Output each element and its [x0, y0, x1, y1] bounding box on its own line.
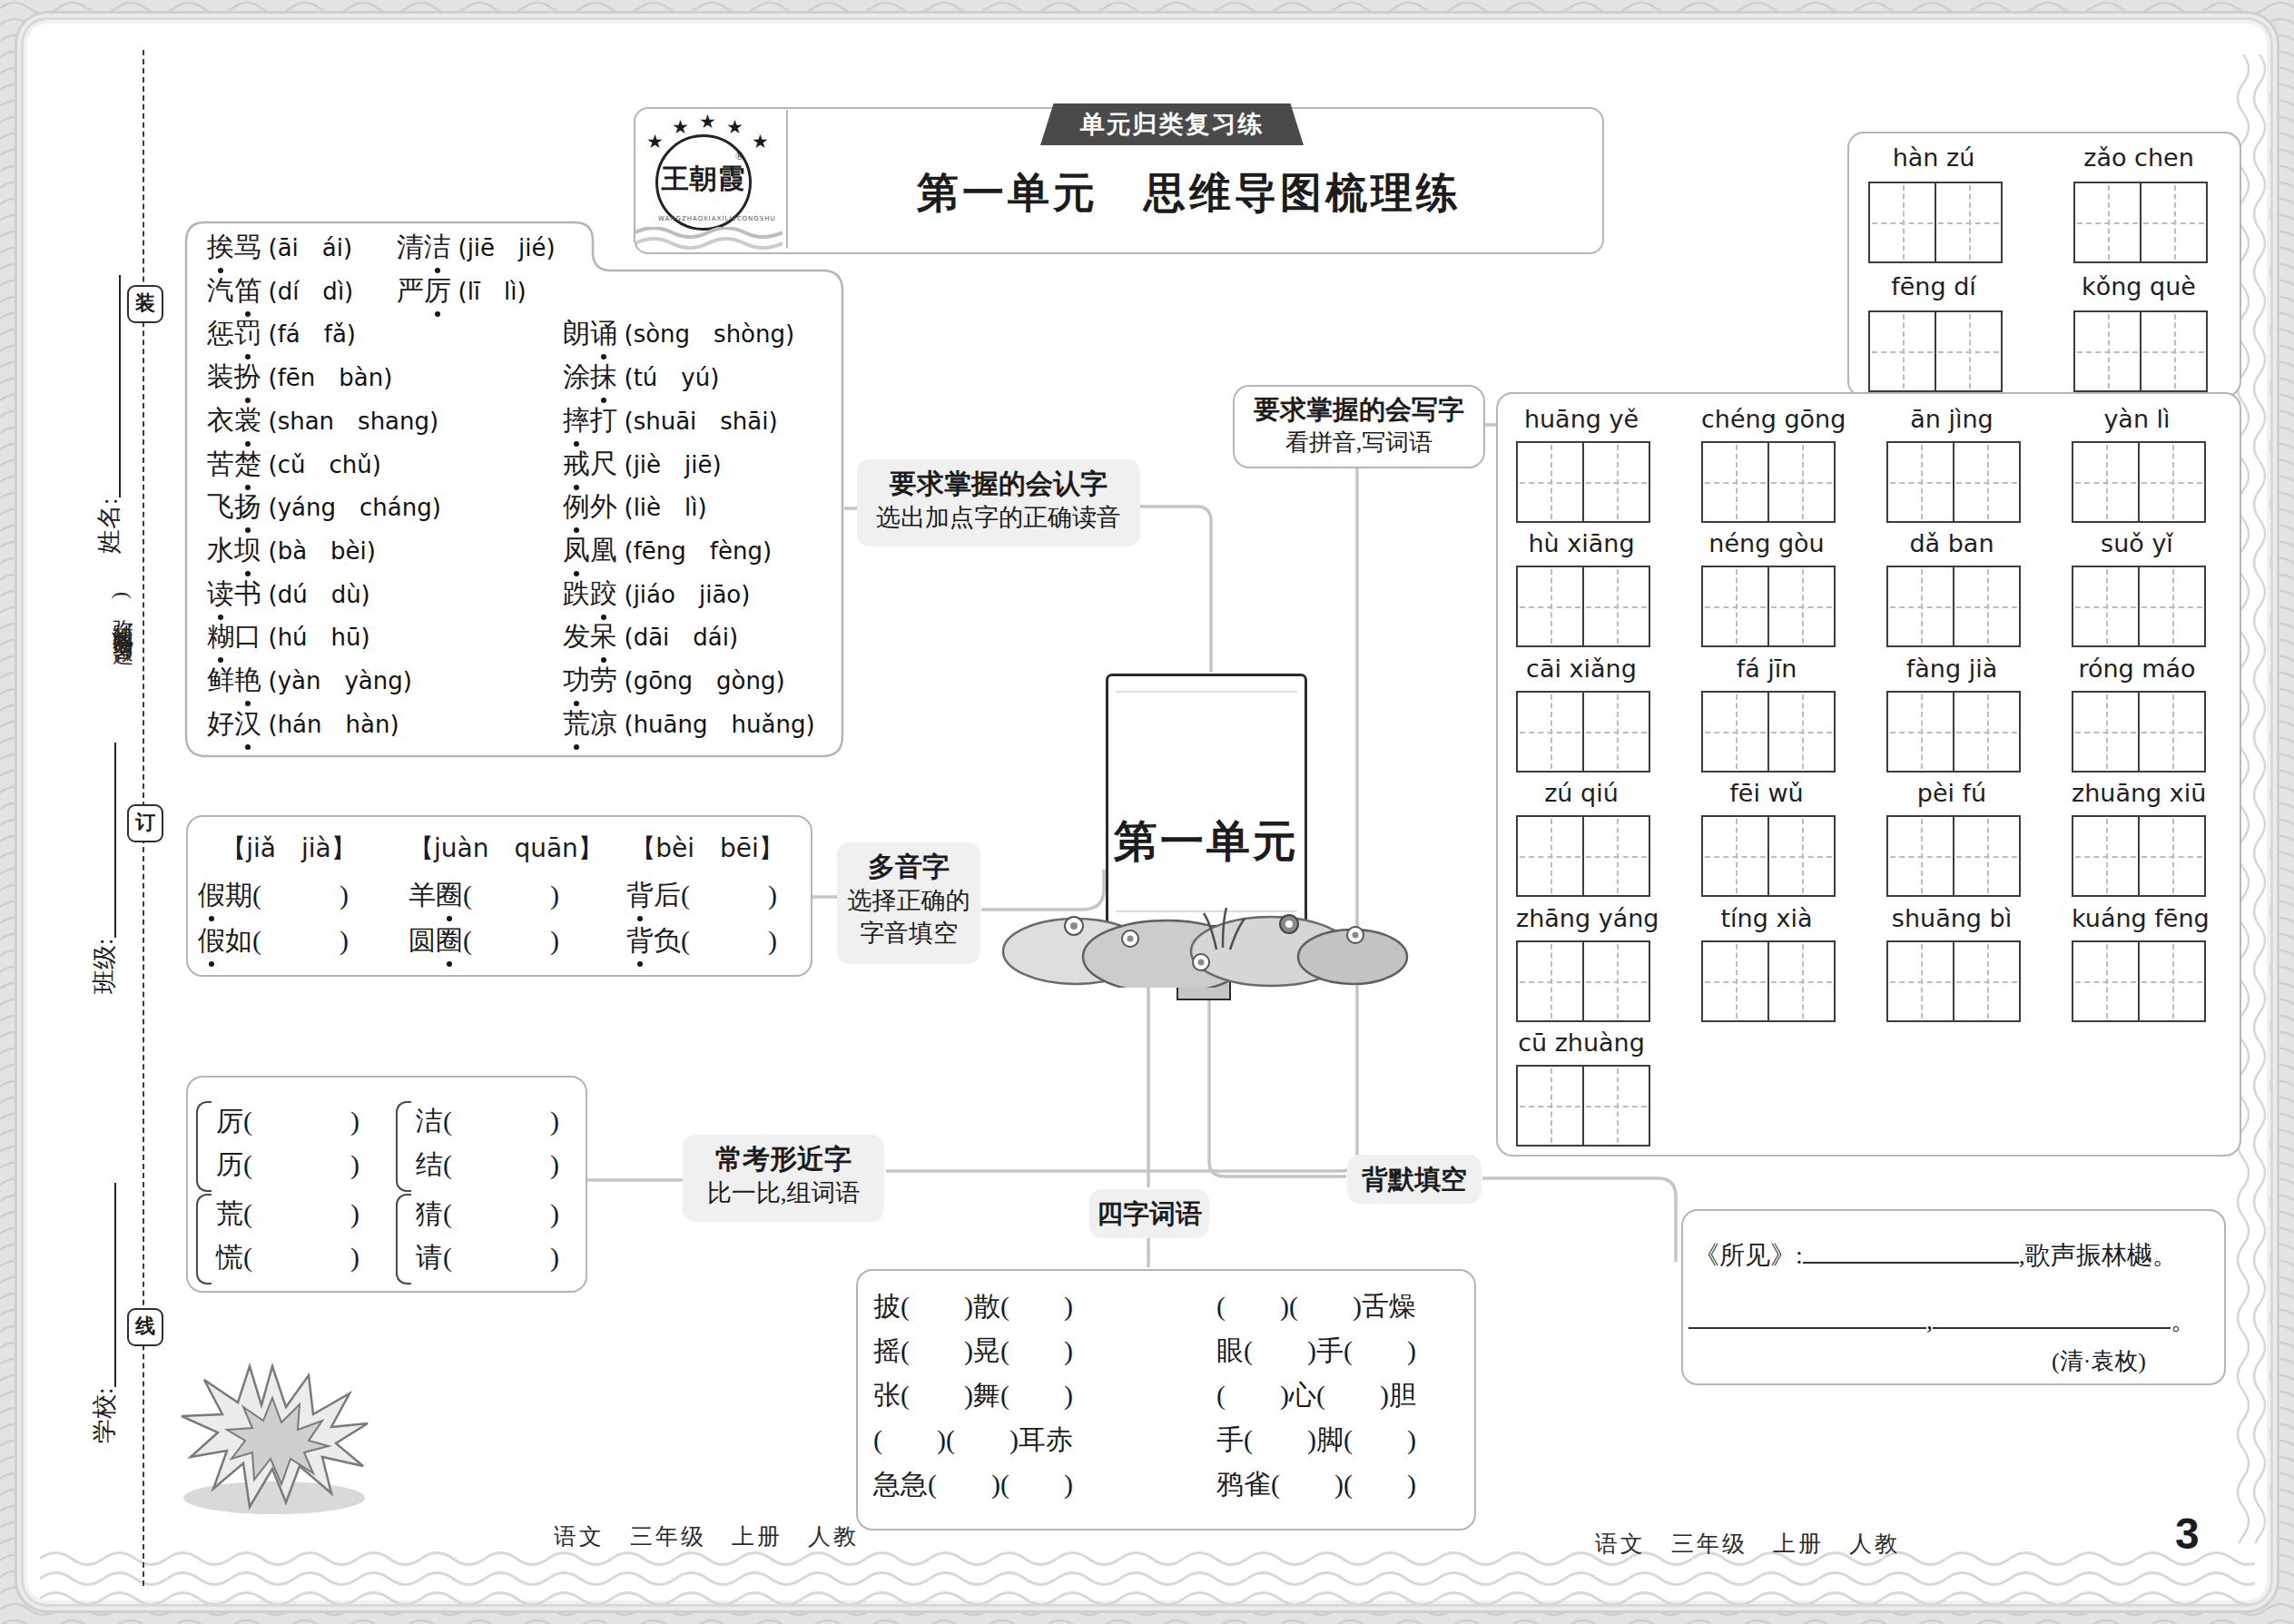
xingjin-entry: 慌(): [216, 1237, 359, 1277]
poem-period: 。: [2171, 1306, 2196, 1334]
grid-cell: [2073, 693, 2138, 771]
node-beimo: 背默填空: [1347, 1155, 1482, 1204]
poem-comma: ,: [1926, 1306, 1933, 1334]
writing-grid: [1701, 441, 1836, 523]
pinyin-options: (tú yú): [625, 364, 720, 391]
hanzi: 涂: [563, 361, 590, 391]
writing-grid: [1516, 566, 1650, 647]
footer-left: 语文 三年级 上册 人教: [554, 1521, 859, 1551]
hanzi: 挨: [207, 227, 234, 267]
grid-cell: [1953, 817, 2019, 895]
writing-grid: [2072, 441, 2206, 523]
duoyin-entry: 背后(): [626, 875, 777, 915]
node-xiezi-subtitle: 看拼音,写词语: [1235, 427, 1483, 459]
grid-cell: [2138, 567, 2204, 645]
unit-banner: 单元归类复习练: [1040, 103, 1304, 145]
hanzi: 猜: [416, 1198, 443, 1228]
grid-pinyin-label: suǒ yǐ: [2072, 529, 2202, 557]
renzi-entry: 涂抹 (tú yú): [563, 357, 719, 397]
poem-blank-3: [1933, 1302, 2171, 1329]
writing-grid: [2072, 566, 2206, 647]
hanzi: 结: [416, 1149, 443, 1179]
beimo-author: (清·袁枚): [2052, 1345, 2146, 1377]
duoyin-entry: 羊圈(): [409, 875, 559, 915]
node-xingjinzi: 常考形近字 比一比,组词语: [683, 1135, 884, 1222]
pinyin-options: (yàn yàng): [269, 667, 412, 694]
beimo-line2: ,。: [1689, 1302, 2196, 1338]
hanzi: 苦: [207, 448, 234, 478]
renzi-entry: 跌跤 (jiáo jiāo): [563, 574, 750, 614]
writing-grid: [1701, 940, 1836, 1022]
unit-sign-text: 第一单元: [1108, 812, 1305, 871]
pinyin-options: (yáng cháng): [269, 494, 441, 521]
hanzi: 假: [198, 920, 225, 960]
duoyin-header: 【juàn quān】: [409, 832, 581, 866]
renzi-entry: 好汉 (hán hàn): [207, 704, 399, 743]
duoyin-entry: 假如(): [198, 920, 349, 960]
xingjin-entry: 结(): [416, 1145, 559, 1185]
hanzi: 如: [225, 925, 252, 955]
writing-grid: [1886, 566, 2021, 647]
grid-pinyin-label: néng gòu: [1701, 529, 1832, 557]
grid-pinyin-label: shuāng bì: [1886, 904, 2017, 932]
hanzi: 假: [198, 875, 225, 915]
grid-pinyin-label: yàn lì: [2072, 405, 2202, 433]
hanzi: 功: [563, 660, 590, 700]
renzi-entry: 鲜艳 (yàn yàng): [207, 660, 412, 700]
poem-blank-2: [1689, 1302, 1926, 1329]
hanzi: 凉: [590, 708, 617, 738]
grid-cell: [1767, 443, 1834, 521]
renzi-entry: 惩罚 (fá fǎ): [207, 313, 356, 353]
grid-pinyin-label: fàng jià: [1886, 655, 2017, 683]
grid-pinyin-label: fēi wǔ: [1701, 779, 1832, 807]
hanzi: 摔: [563, 400, 590, 440]
grid-cell: [1703, 942, 1767, 1020]
writing-grid: [2072, 815, 2206, 897]
hanzi: 洁: [424, 227, 451, 267]
node-xingjinzi-title: 常考形近字: [683, 1142, 884, 1176]
poem-author: (清·袁枚): [2052, 1348, 2146, 1374]
grid-pinyin-label: huāng yě: [1516, 405, 1647, 433]
brand-name: 王朝霞: [658, 161, 749, 198]
pinyin-options: (shan shang): [269, 408, 439, 435]
pinyin-options: (dú dù): [269, 581, 370, 608]
hanzi: 书: [234, 578, 261, 608]
grid-cell: [1888, 693, 1953, 771]
renzi-entry: 衣裳 (shan shang): [207, 400, 438, 440]
writing-grid: [1701, 691, 1836, 773]
pinyin-options: (gōng gòng): [625, 667, 785, 694]
grid-cell: [1518, 567, 1582, 645]
pair-brace: [396, 1194, 411, 1284]
hanzi: 汽: [207, 275, 234, 305]
grid-pinyin-label: tíng xià: [1701, 904, 1832, 932]
renzi-entry: 凤凰 (fēng fèng): [563, 530, 772, 570]
writing-grid: [1886, 815, 2021, 897]
renzi-entry: 飞扬 (yáng cháng): [207, 487, 441, 527]
pinyin-options: (hán hàn): [269, 711, 399, 738]
star-icon: ★: [646, 131, 664, 153]
grid-cell: [1953, 567, 2019, 645]
duoyin-header: 【jiǎ jià】: [198, 832, 379, 866]
grid-pinyin-label: fá jīn: [1701, 655, 1832, 683]
node-sizici-title: 四字词语: [1097, 1199, 1202, 1228]
hanzi: 外: [590, 491, 617, 521]
hanzi: 衣: [207, 405, 234, 435]
poem-blank-1: [1803, 1236, 2019, 1264]
grid-pinyin-label: zǎo chen: [2073, 143, 2204, 172]
duoyin-entry: 圆圈(): [409, 920, 559, 960]
grid-cell: [1582, 942, 1649, 1020]
pinyin-options: (shuāi shāi): [625, 408, 778, 435]
node-renzi-title: 要求掌握的会认字: [857, 467, 1140, 501]
workbook-page: 姓名: 班级: 学校: (弥封线内请勿答题) 装订线 ★ ★ ★ ★ ★: [0, 0, 2294, 1624]
pair-brace: [396, 1101, 411, 1192]
pinyin-options: (fēng fèng): [625, 537, 773, 565]
star-icon: ★: [752, 131, 769, 153]
writing-grid: [1516, 441, 1650, 523]
sizici-entry: 手( )脚( ): [1216, 1419, 1416, 1461]
grid-pinyin-label: róng máo: [2072, 655, 2202, 683]
writing-grid: [1516, 940, 1650, 1022]
node-duoyinzi-sub1: 选择正确的: [837, 884, 980, 917]
renzi-entry: 朗诵 (sòng shòng): [563, 313, 794, 353]
xingjin-entry: 洁(): [416, 1101, 559, 1141]
writing-grid: [1886, 940, 2021, 1022]
beimo-line1: 《所见》:,歌声振林樾。: [1694, 1236, 2178, 1273]
hanzi: 期: [225, 880, 252, 910]
pinyin-options: (sòng shòng): [625, 320, 795, 348]
node-xiezi: 要求掌握的会写字 看拼音,写词语: [1233, 385, 1485, 468]
hanzi: 历: [216, 1149, 243, 1179]
sizici-entry: 鸦雀( )( ): [1216, 1463, 1416, 1505]
renzi-entry: 装扮 (fēn bàn): [207, 357, 392, 397]
node-duoyinzi: 多音字 选择正确的 字音填空: [837, 842, 980, 964]
grid-cell: [2075, 312, 2140, 390]
hanzi: 扮: [234, 357, 261, 397]
hanzi: 抹: [590, 357, 617, 397]
grid-cell: [1582, 443, 1649, 521]
writing-grid: [1886, 691, 2021, 773]
grid-pinyin-label: pèi fú: [1886, 779, 2017, 807]
grid-cell: [1582, 567, 1649, 645]
renzi-entry: 摔打 (shuāi shāi): [563, 400, 778, 440]
hanzi: 背: [626, 875, 654, 915]
grid-pinyin-label: ān jìng: [1886, 405, 2017, 433]
grid-cell: [1953, 693, 2019, 771]
hanzi: 凰: [590, 535, 617, 565]
pinyin-options: (liè lì): [625, 494, 707, 521]
grid-pinyin-label: zhuāng xiū: [2072, 779, 2202, 807]
star-icon: ★: [699, 111, 716, 133]
grid-cell: [1888, 817, 1953, 895]
star-icon: ★: [672, 116, 689, 139]
grid-pinyin-label: dǎ ban: [1886, 529, 2017, 557]
renzi-entry: 读书 (dú dù): [207, 574, 370, 614]
sizici-entry: 摇( )晃( ): [873, 1330, 1073, 1372]
hanzi: 厉: [216, 1106, 243, 1136]
hanzi: 笛: [234, 271, 261, 310]
grid-cell: [1582, 817, 1649, 895]
hanzi: 请: [416, 1242, 443, 1272]
writing-grid: [1868, 182, 2003, 263]
renzi-entry: 清洁 (jiē jié): [397, 227, 556, 267]
pinyin-options: (jiáo jiāo): [625, 581, 751, 608]
hanzi: 圆: [409, 925, 436, 955]
grid-cell: [2140, 183, 2206, 261]
grid-pinyin-label: zú qiú: [1516, 779, 1647, 807]
grid-cell: [1935, 312, 2001, 390]
grid-cell: [1518, 443, 1582, 521]
hanzi: 背: [626, 920, 654, 960]
sizici-entry: ( )( )耳赤: [873, 1419, 1073, 1461]
hanzi: 惩: [207, 318, 234, 348]
pinyin-options: (dāi dái): [625, 624, 739, 651]
hanzi: 厉: [424, 271, 451, 310]
hanzi: 呆: [590, 616, 617, 656]
node-xiezi-title: 要求掌握的会写字: [1235, 392, 1483, 427]
xingjin-entry: 厉(): [216, 1101, 359, 1141]
grid-cell: [1870, 183, 1935, 261]
pinyin-options: (bà bèi): [269, 537, 376, 565]
writing-grid: [1516, 815, 1650, 897]
grid-cell: [1518, 817, 1582, 895]
hanzi: 荒: [563, 704, 590, 743]
node-sizici: 四字词语: [1089, 1189, 1209, 1238]
duoyin-entry: 假期(): [198, 875, 349, 915]
hanzi: 尺: [590, 448, 617, 478]
hanzi: 跌: [563, 578, 590, 608]
hanzi: 跤: [590, 574, 617, 614]
node-renzi-subtitle: 选出加点字的正确读音: [857, 501, 1140, 534]
grid-cell: [1888, 567, 1953, 645]
pinyin-options: (huāng huǎng): [625, 711, 815, 738]
renzi-entry: 例外 (liè lì): [563, 487, 707, 527]
renzi-entry: 挨骂 (āi ái): [207, 227, 352, 267]
brand-ring-text: WANGZHAOXIAXILIECONGSHU: [658, 215, 749, 222]
grid-pinyin-label: zhāng yáng: [1516, 904, 1647, 932]
pinyin-options: (fá fǎ): [269, 320, 356, 348]
hanzi: 清: [397, 231, 424, 261]
hanzi: 好: [207, 708, 234, 738]
grid-cell: [1935, 183, 2001, 261]
grid-cell: [2073, 942, 2138, 1020]
grass-doodle: [163, 1357, 381, 1521]
grid-cell: [1518, 1067, 1582, 1145]
hanzi: 裳: [234, 400, 261, 440]
hanzi: 读: [207, 574, 234, 614]
renzi-entry: 苦楚 (cǔ chǔ): [207, 444, 381, 484]
writing-grid: [1886, 441, 2021, 523]
grid-cell: [2138, 817, 2204, 895]
grid-cell: [2073, 817, 2138, 895]
hanzi: 诵: [590, 313, 617, 353]
writing-grid: [2073, 182, 2208, 263]
grid-pinyin-label: chéng gōng: [1701, 405, 1832, 433]
writing-grid: [1701, 566, 1836, 647]
node-duoyinzi-sub2: 字音填空: [837, 917, 980, 950]
pinyin-options: (āi ái): [269, 234, 353, 261]
sizici-entry: 披( )散( ): [873, 1285, 1073, 1327]
hanzi: 荒: [216, 1198, 243, 1228]
writing-grid: [1516, 691, 1650, 773]
node-beimo-title: 背默填空: [1362, 1165, 1467, 1194]
hanzi: 汉: [234, 704, 261, 743]
renzi-entry: 糊口 (hú hū): [207, 616, 370, 656]
pinyin-options: (lī lì): [458, 278, 527, 305]
writing-grid: [2072, 691, 2206, 773]
grid-cell: [1703, 443, 1767, 521]
pinyin-options: (jiè jiē): [625, 451, 722, 478]
writing-grid: [1516, 1065, 1650, 1147]
hanzi: 艳: [234, 660, 261, 700]
renzi-entry: 功劳 (gōng gòng): [563, 660, 785, 700]
hanzi: 朗: [563, 318, 590, 348]
grid-pinyin-label: kǒng què: [2073, 272, 2204, 300]
registered-mark: ®: [735, 150, 743, 163]
pair-brace: [196, 1194, 212, 1284]
grid-cell: [1953, 443, 2019, 521]
hanzi: 凤: [563, 530, 590, 570]
sizici-entry: 张( )舞( ): [873, 1374, 1073, 1416]
grid-cell: [2073, 567, 2138, 645]
writing-grid: [1701, 815, 1836, 897]
hanzi: 口: [234, 621, 261, 651]
hanzi: 慌: [216, 1242, 243, 1272]
hanzi: 洁: [416, 1106, 443, 1136]
hanzi: 糊: [207, 616, 234, 656]
grid-cell: [1888, 942, 1953, 1020]
node-renzi: 要求掌握的会认字 选出加点字的正确读音: [857, 459, 1140, 546]
star-icon: ★: [726, 116, 743, 139]
hanzi: 骂: [234, 231, 261, 261]
grid-cell: [1953, 942, 2019, 1020]
sizici-entry: ( )( )舌燥: [1216, 1285, 1416, 1327]
hanzi: 装: [207, 361, 234, 391]
grid-cell: [1518, 942, 1582, 1020]
node-xingjinzi-subtitle: 比一比,组词语: [683, 1176, 884, 1209]
hanzi: 飞: [207, 491, 234, 521]
grid-cell: [1767, 817, 1834, 895]
page-title: 第一单元 思维导图梳理练: [799, 165, 1580, 221]
hanzi: 楚: [234, 444, 261, 484]
hanzi: 罚: [234, 313, 261, 353]
grid-pinyin-label: hù xiāng: [1516, 529, 1647, 557]
pinyin-options: (hú hū): [269, 624, 370, 651]
pinyin-options: (dí dì): [269, 278, 354, 305]
grid-cell: [2138, 942, 2204, 1020]
hanzi: 羊: [409, 880, 436, 910]
hanzi: 扬: [234, 487, 261, 527]
writing-grid: [2072, 940, 2206, 1022]
sizici-entry: 急急( )( ): [873, 1463, 1073, 1505]
grass-and-flowers: [994, 879, 1412, 988]
grid-cell: [2138, 693, 2204, 771]
hanzi: 打: [590, 405, 617, 435]
brand-logo: 王朝霞 ® WANGZHAOXIAXILIECONGSHU: [655, 134, 752, 231]
grid-cell: [1703, 693, 1767, 771]
sizici-entry: 眼( )手( ): [1216, 1330, 1416, 1372]
xingjin-entry: 猜(): [416, 1194, 559, 1234]
hanzi: 严: [397, 275, 424, 305]
renzi-entry: 荒凉 (huāng huǎng): [563, 704, 815, 743]
pinyin-options: (cǔ chǔ): [269, 451, 381, 478]
hanzi: 后: [654, 880, 681, 910]
xingjin-entry: 请(): [416, 1237, 559, 1277]
grid-cell: [1703, 817, 1767, 895]
duoyin-header: 【bèi bēi】: [626, 832, 788, 866]
page-number: 3: [2175, 1509, 2200, 1559]
grid-cell: [1767, 942, 1834, 1020]
poem-tail: ,歌声振林樾。: [2019, 1241, 2178, 1269]
grid-pinyin-label: cū zhuàng: [1516, 1029, 1647, 1057]
writing-grid: [2073, 310, 2208, 392]
xingjin-entry: 历(): [216, 1145, 359, 1185]
hanzi: 坝: [234, 530, 261, 570]
renzi-entry: 严厉 (lī lì): [397, 271, 527, 310]
grid-cell: [1767, 693, 1834, 771]
poem-title: 《所见》:: [1694, 1241, 1803, 1269]
grid-pinyin-label: kuáng fēng: [2072, 904, 2202, 932]
sizici-entry: ( )心( )胆: [1216, 1374, 1416, 1416]
hanzi: 例: [563, 487, 590, 527]
grid-cell: [1888, 443, 1953, 521]
grid-cell: [2075, 183, 2140, 261]
grid-cell: [1767, 567, 1834, 645]
pinyin-options: (fēn bàn): [269, 364, 393, 391]
hanzi: 圈: [436, 920, 463, 960]
grid-cell: [1582, 1067, 1649, 1145]
hanzi: 圈: [436, 875, 463, 915]
grid-cell: [1518, 693, 1582, 771]
renzi-entry: 发呆 (dāi dái): [563, 616, 738, 656]
duoyin-entry: 背负(): [626, 920, 777, 960]
renzi-entry: 汽笛 (dí dì): [207, 271, 353, 310]
grid-cell: [2073, 443, 2138, 521]
grid-pinyin-label: cāi xiǎng: [1516, 655, 1647, 683]
hanzi: 负: [654, 925, 681, 955]
renzi-entry: 水坝 (bà bèi): [207, 530, 376, 570]
node-duoyinzi-title: 多音字: [837, 850, 980, 884]
xingjin-entry: 荒(): [216, 1194, 359, 1234]
logo-waves: [635, 227, 783, 252]
grid-cell: [1582, 693, 1649, 771]
hanzi: 水: [207, 535, 234, 565]
hanzi: 劳: [590, 664, 617, 694]
footer-right: 语文 三年级 上册 人教: [1595, 1529, 1900, 1559]
pair-brace: [196, 1101, 212, 1192]
writing-grid: [1868, 310, 2003, 392]
header-logo-divider: [786, 110, 788, 248]
grid-pinyin-label: hàn zú: [1868, 143, 1999, 172]
grid-cell: [2140, 312, 2206, 390]
grid-cell: [1703, 567, 1767, 645]
grid-cell: [1870, 312, 1935, 390]
hanzi: 戒: [563, 444, 590, 484]
hanzi: 发: [563, 621, 590, 651]
hanzi: 鲜: [207, 664, 234, 694]
grid-cell: [2138, 443, 2204, 521]
renzi-entry: 戒尺 (jiè jiē): [563, 444, 722, 484]
pinyin-options: (jiē jié): [458, 234, 556, 261]
grid-pinyin-label: fēng dí: [1868, 272, 1999, 300]
